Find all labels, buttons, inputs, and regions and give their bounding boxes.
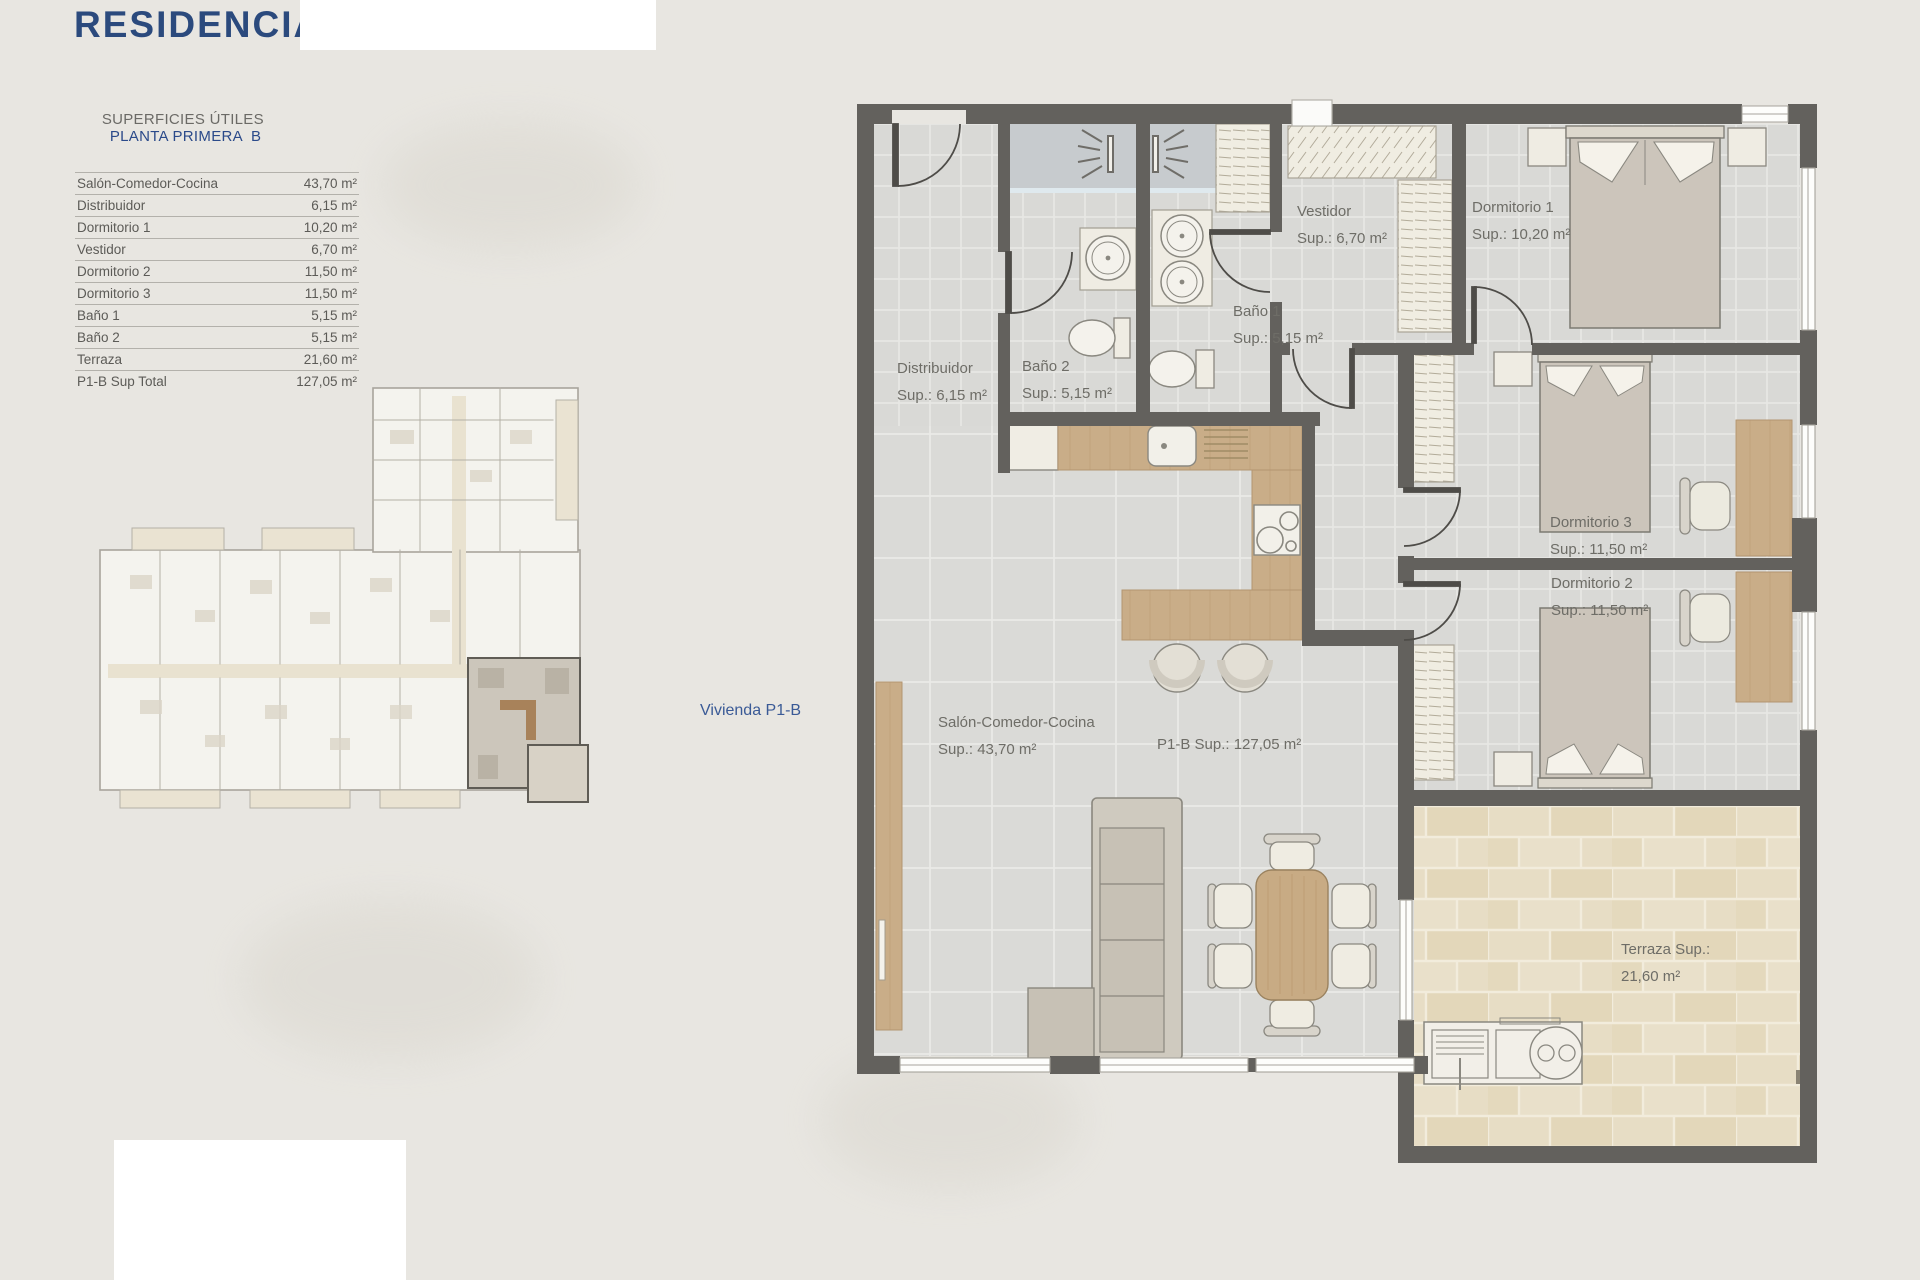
table-rows: Salón-Comedor-Cocina43,70 m² Distribuido… (75, 172, 359, 392)
overview-key-plan (100, 388, 588, 808)
room-label-total: P1-B Sup.: 127,05 m² (1157, 731, 1301, 758)
room-label-dormitorio2: Dormitorio 2Sup.: 11,50 m² (1551, 570, 1648, 624)
room-label-bano1: Baño 1Sup.: 5,15 m² (1233, 298, 1323, 352)
room-label-dormitorio3: Dormitorio 3Sup.: 11,50 m² (1550, 509, 1647, 563)
table-row: Baño 25,15 m² (75, 327, 359, 349)
table-row: Dormitorio 311,50 m² (75, 283, 359, 305)
vivienda-callout: Vivienda P1-B (700, 702, 801, 720)
table-row: Salón-Comedor-Cocina43,70 m² (75, 173, 359, 195)
page: RESIDENCIAL SUPERFICIES ÚTILES PLANTA PR… (0, 0, 1920, 1280)
kitchen-sink (1148, 426, 1196, 466)
masked-footer-area (114, 1140, 406, 1280)
table-row: Terraza21,60 m² (75, 349, 359, 371)
masked-logo-area (300, 0, 656, 50)
room-label-bano2: Baño 2Sup.: 5,15 m² (1022, 353, 1112, 407)
room-label-terraza: Terraza Sup.:21,60 m² (1621, 936, 1710, 990)
table-row: Dormitorio 110,20 m² (75, 217, 359, 239)
toilet (1069, 318, 1130, 358)
floor-terraza (1414, 806, 1817, 1146)
desk (1736, 420, 1792, 556)
table-header: SUPERFICIES ÚTILES PLANTA PRIMERA B (75, 94, 359, 162)
shower-zones (1010, 124, 1216, 193)
desk-chair (1690, 594, 1730, 642)
table-row: P1-B Sup Total127,05 m² (75, 371, 359, 392)
room-label-dormitorio1: Dormitorio 1Sup.: 10,20 m² (1472, 194, 1570, 248)
table-row: Dormitorio 211,50 m² (75, 261, 359, 283)
room-label-vestidor: VestidorSup.: 6,70 m² (1297, 198, 1387, 252)
apartment-plan (857, 100, 1817, 1163)
desk (1736, 572, 1792, 702)
table-row: Vestidor6,70 m² (75, 239, 359, 261)
desk-chair (1690, 482, 1730, 530)
room-label-distribuidor: DistribuidorSup.: 6,15 m² (897, 355, 987, 409)
chaise (1028, 988, 1094, 1058)
fridge (1008, 420, 1058, 470)
table-header-right: PLANTA PRIMERA B (110, 128, 262, 145)
toilet (1149, 350, 1214, 388)
room-label-salon: Salón-Comedor-CocinaSup.: 43,70 m² (938, 709, 1095, 763)
table-row: Distribuidor6,15 m² (75, 195, 359, 217)
table-header-left: SUPERFICIES ÚTILES (102, 111, 264, 128)
table-row: Baño 15,15 m² (75, 305, 359, 327)
surfaces-table: SUPERFICIES ÚTILES PLANTA PRIMERA B Saló… (75, 94, 359, 392)
